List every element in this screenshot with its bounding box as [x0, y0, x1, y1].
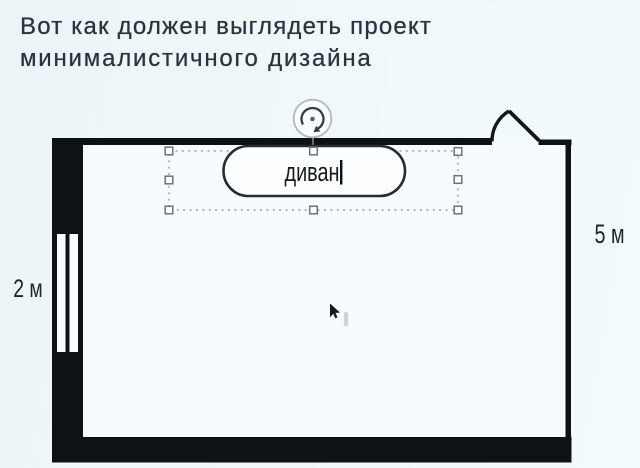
- svg-text:2 м: 2 м: [13, 275, 43, 303]
- svg-text:диван: диван: [285, 157, 340, 187]
- svg-text:5 м: 5 м: [595, 219, 625, 249]
